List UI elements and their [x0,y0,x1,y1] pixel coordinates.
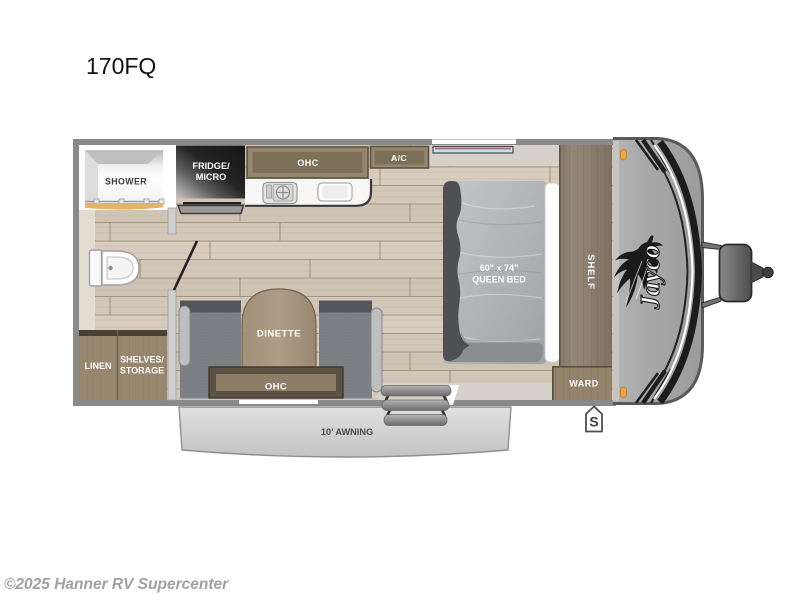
svg-text:Jayco: Jayco [635,245,665,310]
svg-text:DINETTE: DINETTE [257,329,301,340]
svg-text:©2025 Hanner RV Supercenter: ©2025 Hanner RV Supercenter [4,576,229,593]
svg-text:SHOWER: SHOWER [105,177,147,187]
svg-text:LINEN: LINEN [85,361,112,371]
svg-text:QUEEN BED: QUEEN BED [472,275,526,285]
svg-text:170FQ: 170FQ [86,53,156,79]
svg-text:OHC: OHC [297,158,318,168]
svg-text:MICRO: MICRO [196,172,227,182]
svg-text:SHELVES/: SHELVES/ [120,355,164,365]
svg-text:STORAGE: STORAGE [120,366,164,376]
svg-text:S: S [589,414,598,430]
svg-text:WARD: WARD [569,379,599,389]
svg-text:OHC: OHC [265,382,287,393]
svg-text:FRIDGE/: FRIDGE/ [192,161,230,171]
svg-text:60" x 74": 60" x 74" [480,263,519,273]
svg-text:10’ AWNING: 10’ AWNING [321,427,373,437]
svg-text:SHELF: SHELF [585,254,596,290]
svg-text:A/C: A/C [391,153,407,163]
